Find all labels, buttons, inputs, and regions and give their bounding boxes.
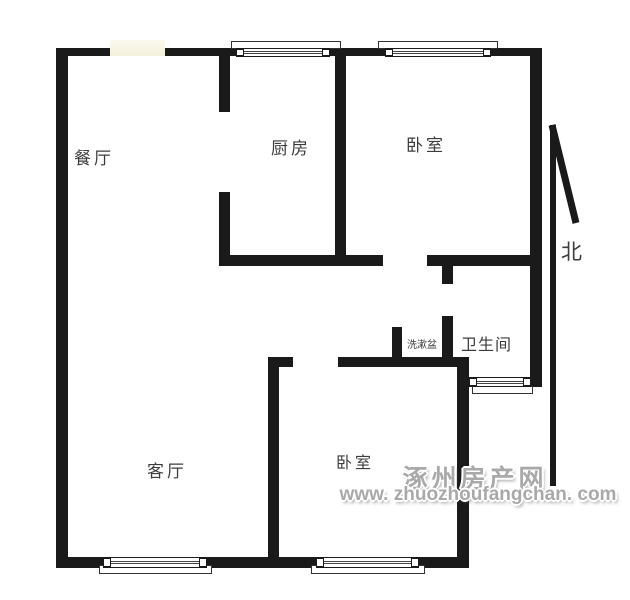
- window-kitchen: [236, 48, 330, 57]
- window-cap: [483, 49, 491, 56]
- room-label-dining: 餐厅: [74, 144, 114, 169]
- north-label: 北: [561, 236, 582, 266]
- watermark-site-url: www. zhuozhoufangchan. com: [340, 484, 617, 506]
- room-label-washbasin: 洗漱盆: [407, 336, 437, 351]
- entry-door-gap: [110, 40, 165, 56]
- window-bedroom-top: [385, 48, 491, 57]
- window-cap: [236, 49, 244, 56]
- window-rail: [393, 51, 483, 54]
- window-cap: [523, 378, 531, 386]
- window-living: [103, 557, 207, 568]
- wall-washbasin-stub: [392, 327, 402, 361]
- window-bathroom: [469, 377, 531, 387]
- wall-mid-horizontal-left: [219, 255, 383, 266]
- window-cap: [322, 49, 330, 56]
- wall-exterior-right: [530, 48, 542, 387]
- window-rail: [111, 561, 199, 564]
- room-label-bedroom-top: 卧室: [406, 131, 446, 156]
- wall-kitchen-bedroom-divider: [335, 48, 346, 266]
- room-label-kitchen: 厨房: [271, 134, 311, 159]
- wall-mid-horizontal-right: [427, 255, 541, 266]
- window-rail: [324, 561, 411, 564]
- window-rail: [244, 51, 322, 54]
- window-cap: [103, 558, 111, 567]
- wall-bathroom-door-stub: [442, 266, 453, 284]
- north-arrow-barb-icon: [545, 118, 585, 230]
- window-bathroom-outer: [472, 386, 533, 394]
- room-label-bedroom-bottom: 卧室: [336, 449, 374, 473]
- window-cap: [316, 558, 324, 567]
- wall-kitchen-left-upper: [219, 48, 230, 112]
- wall-bathroom-left: [442, 316, 453, 361]
- window-cap: [411, 558, 419, 567]
- window-cap: [199, 558, 207, 567]
- window-cap: [385, 49, 393, 56]
- room-label-living: 客厅: [147, 457, 187, 482]
- wall-living-bedroom-divider: [268, 357, 279, 568]
- wall-hall-right: [338, 357, 468, 367]
- wall-exterior-left: [56, 48, 68, 568]
- window-bedroom-bottom: [316, 557, 419, 568]
- floorplan-canvas: 北 餐厅 厨房 卧室 卫生间 洗漱盆 客厅 卧室 涿州房产网 www. zhuo…: [0, 0, 630, 600]
- room-label-bathroom: 卫生间: [461, 331, 512, 355]
- window-rail: [477, 381, 523, 384]
- window-cap: [469, 378, 477, 386]
